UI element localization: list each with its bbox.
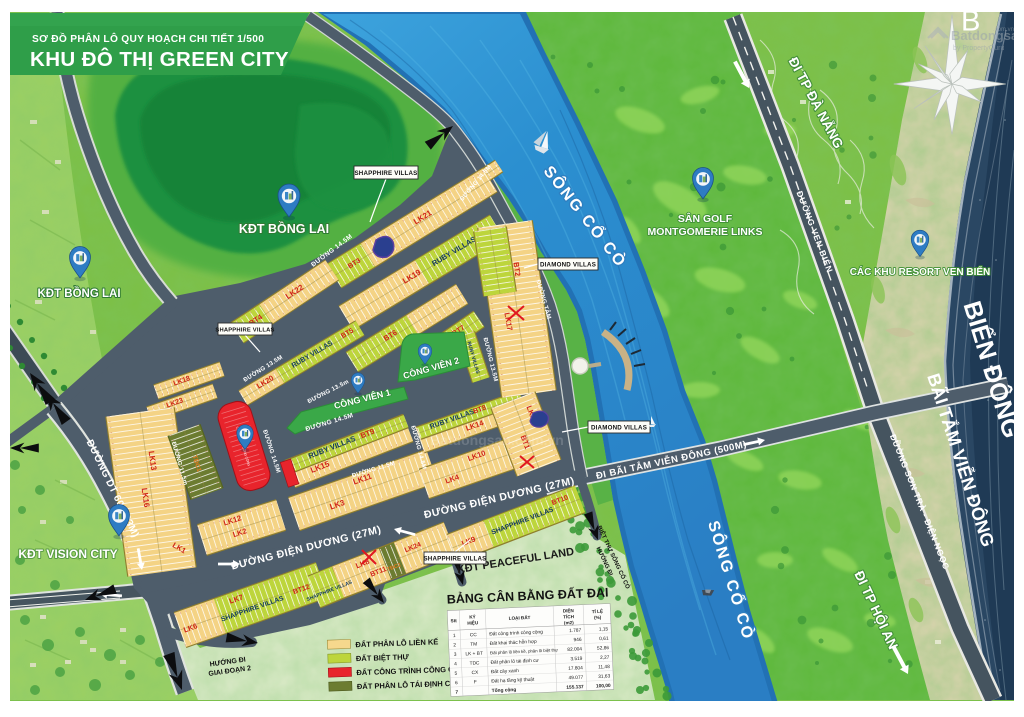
svg-text:11,48: 11,48: [598, 664, 610, 671]
svg-text:TDC: TDC: [469, 660, 480, 666]
svg-text:Stt: Stt: [450, 618, 457, 623]
svg-text:52,86: 52,86: [597, 645, 610, 652]
svg-text:17.804: 17.804: [568, 665, 583, 672]
svg-text:TM: TM: [470, 642, 477, 648]
svg-text:100,00: 100,00: [596, 683, 611, 690]
svg-text:3.519: 3.519: [570, 656, 583, 663]
svg-text:CC: CC: [470, 632, 478, 638]
svg-text:.com.vn: .com.vn: [993, 27, 1014, 33]
svg-text:946: 946: [573, 637, 582, 643]
svg-text:(m2): (m2): [564, 620, 574, 625]
svg-text:KHU ĐÔ THỊ GREEN CITY: KHU ĐÔ THỊ GREEN CITY: [30, 47, 289, 71]
svg-text:LOẠI ĐẤT: LOẠI ĐẤT: [509, 614, 531, 621]
svg-text:DIAMOND VILLAS: DIAMOND VILLAS: [540, 262, 596, 269]
svg-text:SÂN GOLF: SÂN GOLF: [678, 212, 733, 225]
svg-text:82.004: 82.004: [567, 646, 582, 653]
svg-text:31,63: 31,63: [598, 673, 611, 680]
svg-text:MONTGOMERIE LINKS: MONTGOMERIE LINKS: [648, 226, 763, 238]
svg-text:SHAPPHIRE VILLAS: SHAPPHIRE VILLAS: [215, 328, 274, 334]
svg-text:CÁC KHU RESORT VEN BIỂN: CÁC KHU RESORT VEN BIỂN: [850, 265, 991, 278]
svg-text:CX: CX: [471, 670, 479, 676]
svg-text:DIAMOND VILLAS: DIAMOND VILLAS: [591, 425, 647, 432]
svg-text:by PropertyGuru: by PropertyGuru: [953, 45, 1004, 52]
svg-text:ĐẤT BIỆT THỰ: ĐẤT BIỆT THỰ: [356, 651, 410, 663]
svg-text:Batdongsan.com.vn: Batdongsan.com.vn: [430, 432, 564, 448]
svg-text:155.137: 155.137: [566, 684, 584, 691]
svg-text:KÝ: KÝ: [469, 613, 476, 619]
svg-text:1,15: 1,15: [599, 626, 609, 632]
svg-text:Đất cây xanh: Đất cây xanh: [491, 668, 520, 675]
svg-text:KĐT BỒNG LAI: KĐT BỒNG LAI: [37, 287, 120, 300]
svg-text:KĐT VISION CITY: KĐT VISION CITY: [18, 547, 117, 561]
svg-text:SHAPPHIRE VILLAS: SHAPPHIRE VILLAS: [354, 170, 417, 177]
svg-text:LK + BT: LK + BT: [465, 651, 483, 658]
svg-text:KĐT BỒNG LAI: KĐT BỒNG LAI: [239, 221, 329, 236]
svg-text:SƠ ĐỒ PHÂN LÔ QUY HOẠCH CHI TI: SƠ ĐỒ PHÂN LÔ QUY HOẠCH CHI TIẾT 1/500: [32, 32, 264, 45]
svg-text:SHAPPHIRE VILLAS: SHAPPHIRE VILLAS: [423, 556, 486, 563]
svg-text:0,61: 0,61: [599, 636, 609, 642]
svg-text:(%): (%): [594, 615, 602, 620]
svg-text:1.787: 1.787: [569, 628, 582, 635]
svg-text:2,27: 2,27: [600, 655, 610, 661]
svg-text:F: F: [474, 679, 477, 685]
svg-text:49.077: 49.077: [568, 675, 583, 682]
